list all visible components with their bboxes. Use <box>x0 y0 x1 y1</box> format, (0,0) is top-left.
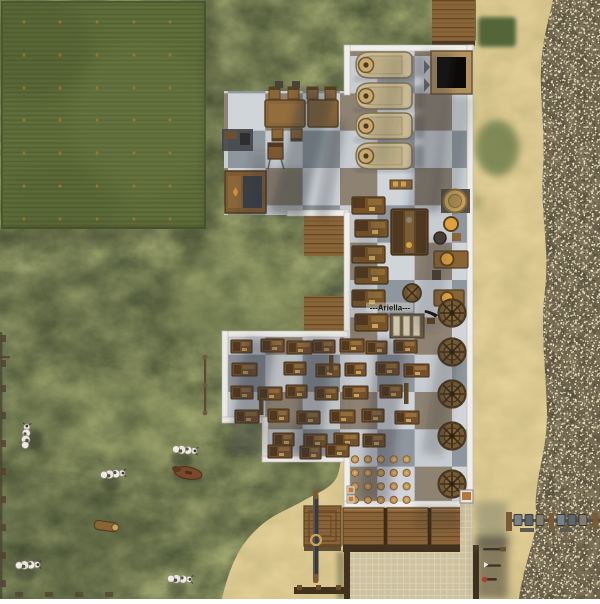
svg-text:---Ariella---: ---Ariella--- <box>370 304 411 313</box>
